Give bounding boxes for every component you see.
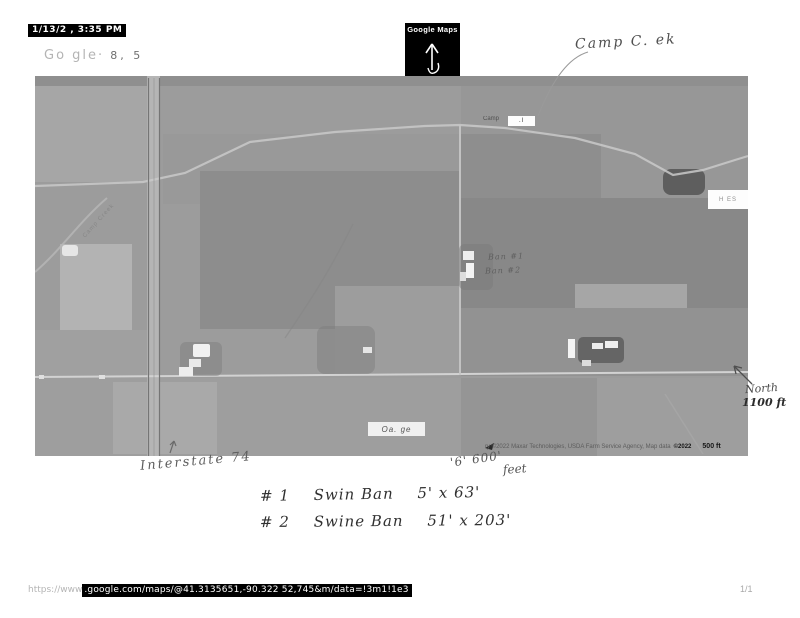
building (582, 360, 591, 366)
barn1-note-text: Swin Ban (314, 485, 394, 504)
field-patch (35, 330, 147, 376)
hes-label-box: H ES (708, 190, 748, 209)
building (592, 343, 603, 349)
barn2-note-number: # 2 (260, 513, 290, 531)
faded-google-text: Go gle· (44, 48, 104, 63)
url-footer: https://www.google.com/maps/@41.3135651,… (28, 585, 412, 595)
building (179, 367, 193, 376)
scale-label: 500 ft (702, 443, 720, 450)
building (193, 344, 210, 357)
measure-unit-annotation: feet (503, 461, 527, 477)
barn1-note: # 1 Swin Ban 5' x 63' (260, 483, 481, 505)
barn1-note-dims: 5' x 63' (417, 483, 480, 502)
building (568, 339, 575, 358)
scanned-page: 1/13/2 , 3:35 PM Go gle· 8, 5 Google Map… (0, 0, 800, 618)
camp-place-label: Camp (483, 116, 499, 122)
field-patch (35, 86, 147, 182)
timestamp-stamp: 1/13/2 , 3:35 PM (28, 24, 126, 37)
tree-grove (663, 169, 705, 195)
field-patch (60, 244, 132, 330)
building (363, 347, 372, 353)
barn1-annotation: Ban #1 (488, 251, 524, 261)
barn1-note-number: # 1 (260, 486, 290, 505)
barn2-note: # 2 Swine Ban 51' x 203' (260, 511, 511, 531)
building (605, 341, 618, 348)
faded-google-header: Go gle· 8, 5 (44, 48, 143, 63)
field-patch (113, 382, 217, 454)
building (39, 375, 44, 379)
north-word-annotation: North (745, 381, 779, 396)
creek-road-label: Camp Creek (82, 203, 116, 239)
url-text: .google.com/maps/@41.3135651,-90.322 52,… (82, 584, 411, 597)
interstate-strip (147, 76, 160, 456)
page-indicator: 1/1 (740, 584, 753, 594)
camp-label-box: .l (508, 116, 535, 126)
field-patch (35, 76, 748, 86)
barn2-note-dims: 51' x 203' (427, 511, 511, 530)
field-patch (461, 134, 601, 198)
google-maps-badge: Google Maps (405, 23, 460, 77)
building (463, 251, 474, 260)
barn2-note-text: Swine Ban (314, 512, 404, 531)
building (460, 272, 466, 281)
barn2-annotation: Ban #2 (485, 265, 521, 275)
google-maps-badge-title: Google Maps (407, 25, 457, 34)
url-prefix: https://www (28, 585, 82, 595)
aerial-map[interactable]: Camp .l H ES Oa. ge Camp Creek Ban #1 Ba… (35, 76, 748, 456)
faded-header-digits: 8, 5 (110, 49, 143, 62)
village-label-box: Oa. ge (368, 422, 425, 436)
building (189, 359, 201, 367)
camp-creek-annotation: Camp C. ek (575, 31, 677, 52)
map-attribution: ry ©2022 Maxar Technologies, USDA Farm S… (485, 443, 745, 450)
north-arrow-icon (405, 34, 460, 76)
field-blob (62, 245, 78, 256)
north-distance-annotation: 1100 ft (742, 396, 786, 409)
attribution-text: ry ©2022 Maxar Technologies, USDA Farm S… (485, 444, 671, 450)
building (99, 375, 105, 379)
attribution-year: ©2022 (674, 444, 692, 450)
building (466, 263, 474, 278)
